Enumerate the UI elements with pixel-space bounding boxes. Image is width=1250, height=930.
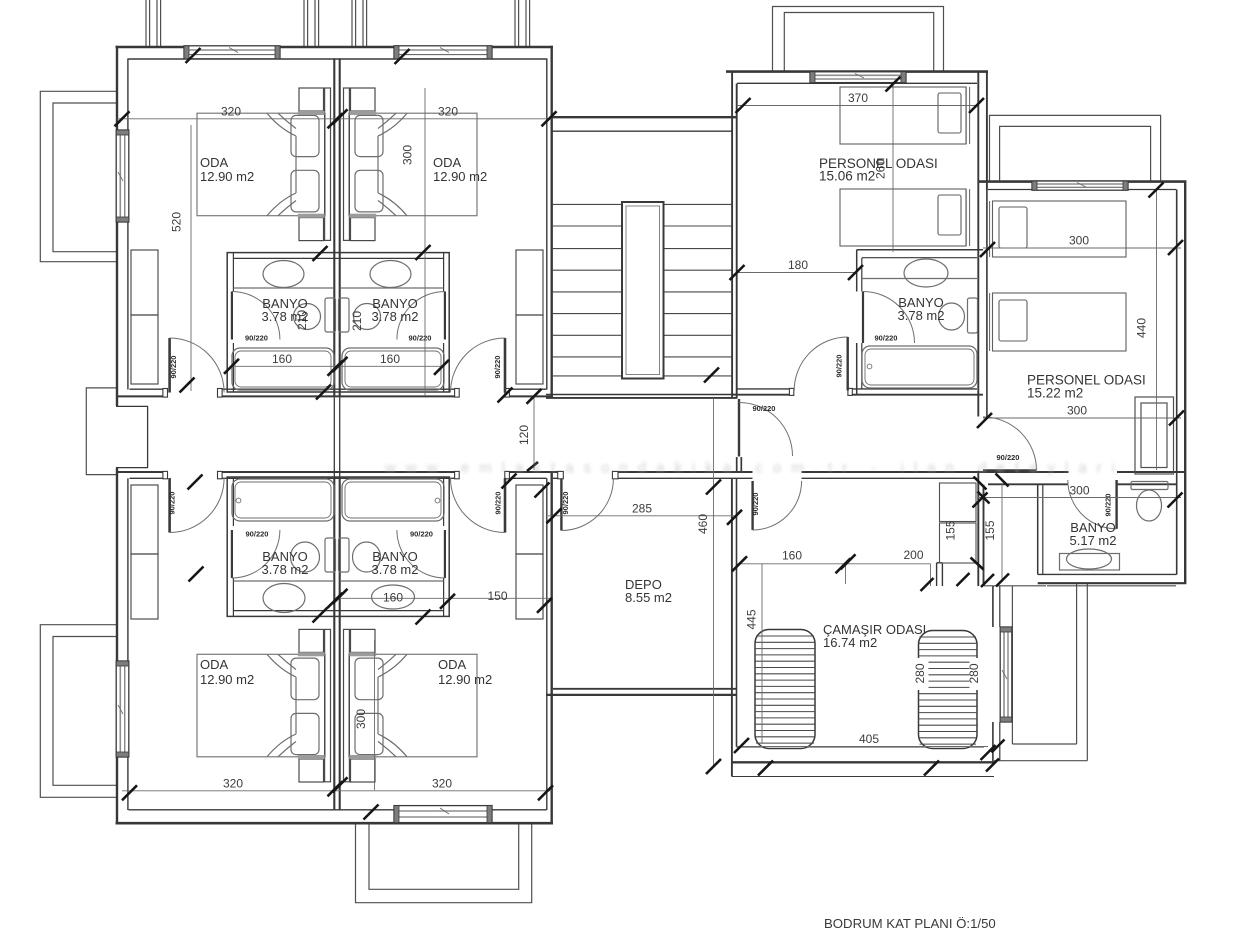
svg-text:90/220: 90/220 xyxy=(561,492,570,515)
svg-text:210: 210 xyxy=(350,311,364,331)
svg-text:285: 285 xyxy=(632,502,652,516)
svg-text:445: 445 xyxy=(745,609,759,629)
svg-text:ODA: ODA xyxy=(438,657,467,672)
svg-text:90/220: 90/220 xyxy=(493,356,502,379)
svg-text:520: 520 xyxy=(170,212,184,232)
svg-text:320: 320 xyxy=(221,105,241,119)
svg-text:3.78 m2: 3.78 m2 xyxy=(898,308,945,323)
svg-text:12.90 m2: 12.90 m2 xyxy=(438,672,492,687)
svg-text:90/220: 90/220 xyxy=(1104,494,1113,517)
svg-text:160: 160 xyxy=(380,352,400,366)
svg-text:90/220: 90/220 xyxy=(410,530,433,539)
svg-text:150: 150 xyxy=(487,589,507,603)
svg-text:320: 320 xyxy=(438,105,458,119)
svg-text:460: 460 xyxy=(696,514,710,534)
svg-text:15.22 m2: 15.22 m2 xyxy=(1027,386,1083,401)
svg-text:12.90 m2: 12.90 m2 xyxy=(200,672,254,687)
svg-text:90/220: 90/220 xyxy=(751,493,760,516)
svg-text:160: 160 xyxy=(782,549,802,563)
svg-text:300: 300 xyxy=(354,709,368,729)
svg-text:300: 300 xyxy=(1069,484,1089,498)
svg-text:90/220: 90/220 xyxy=(835,355,844,378)
svg-text:370: 370 xyxy=(848,91,868,105)
svg-text:3.78 m2: 3.78 m2 xyxy=(372,562,419,577)
svg-text:120: 120 xyxy=(517,425,531,445)
svg-text:160: 160 xyxy=(383,591,403,605)
svg-text:12.90 m2: 12.90 m2 xyxy=(200,169,254,184)
svg-text:5.17 m2: 5.17 m2 xyxy=(1070,533,1117,548)
svg-text:ODA: ODA xyxy=(200,155,229,170)
svg-text:90/220: 90/220 xyxy=(168,492,177,515)
svg-text:90/220: 90/220 xyxy=(753,404,776,413)
svg-text:90/220: 90/220 xyxy=(494,492,503,515)
svg-text:280: 280 xyxy=(967,663,981,683)
svg-text:300: 300 xyxy=(1069,234,1089,248)
svg-text:300: 300 xyxy=(401,145,415,165)
svg-text:90/220: 90/220 xyxy=(246,530,269,539)
svg-text:ODA: ODA xyxy=(200,657,229,672)
svg-text:BODRUM KAT PLANI Ö:1/50: BODRUM KAT PLANI Ö:1/50 xyxy=(824,916,996,930)
svg-text:90/220: 90/220 xyxy=(875,334,898,343)
svg-text:155: 155 xyxy=(944,520,958,540)
svg-text:405: 405 xyxy=(859,732,879,746)
svg-text:320: 320 xyxy=(223,777,243,791)
svg-text:16.74 m2: 16.74 m2 xyxy=(823,635,877,650)
svg-text:440: 440 xyxy=(1135,318,1149,338)
svg-text:90/220: 90/220 xyxy=(245,334,268,343)
svg-text:3.78 m2: 3.78 m2 xyxy=(262,309,309,324)
svg-text:3.78 m2: 3.78 m2 xyxy=(372,309,419,324)
svg-text:90/220: 90/220 xyxy=(169,356,178,379)
svg-text:3.78 m2: 3.78 m2 xyxy=(262,562,309,577)
svg-text:ODA: ODA xyxy=(433,155,462,170)
svg-text:280: 280 xyxy=(913,663,927,683)
svg-text:200: 200 xyxy=(903,548,923,562)
svg-text:155: 155 xyxy=(983,520,997,540)
svg-text:300: 300 xyxy=(1067,404,1087,418)
svg-text:8.55 m2: 8.55 m2 xyxy=(625,590,672,605)
svg-text:320: 320 xyxy=(432,777,452,791)
svg-text:160: 160 xyxy=(272,352,292,366)
svg-text:15.06 m2: 15.06 m2 xyxy=(819,169,875,184)
svg-text:12.90 m2: 12.90 m2 xyxy=(433,169,487,184)
svg-text:180: 180 xyxy=(788,258,808,272)
svg-text:90/220: 90/220 xyxy=(409,334,432,343)
